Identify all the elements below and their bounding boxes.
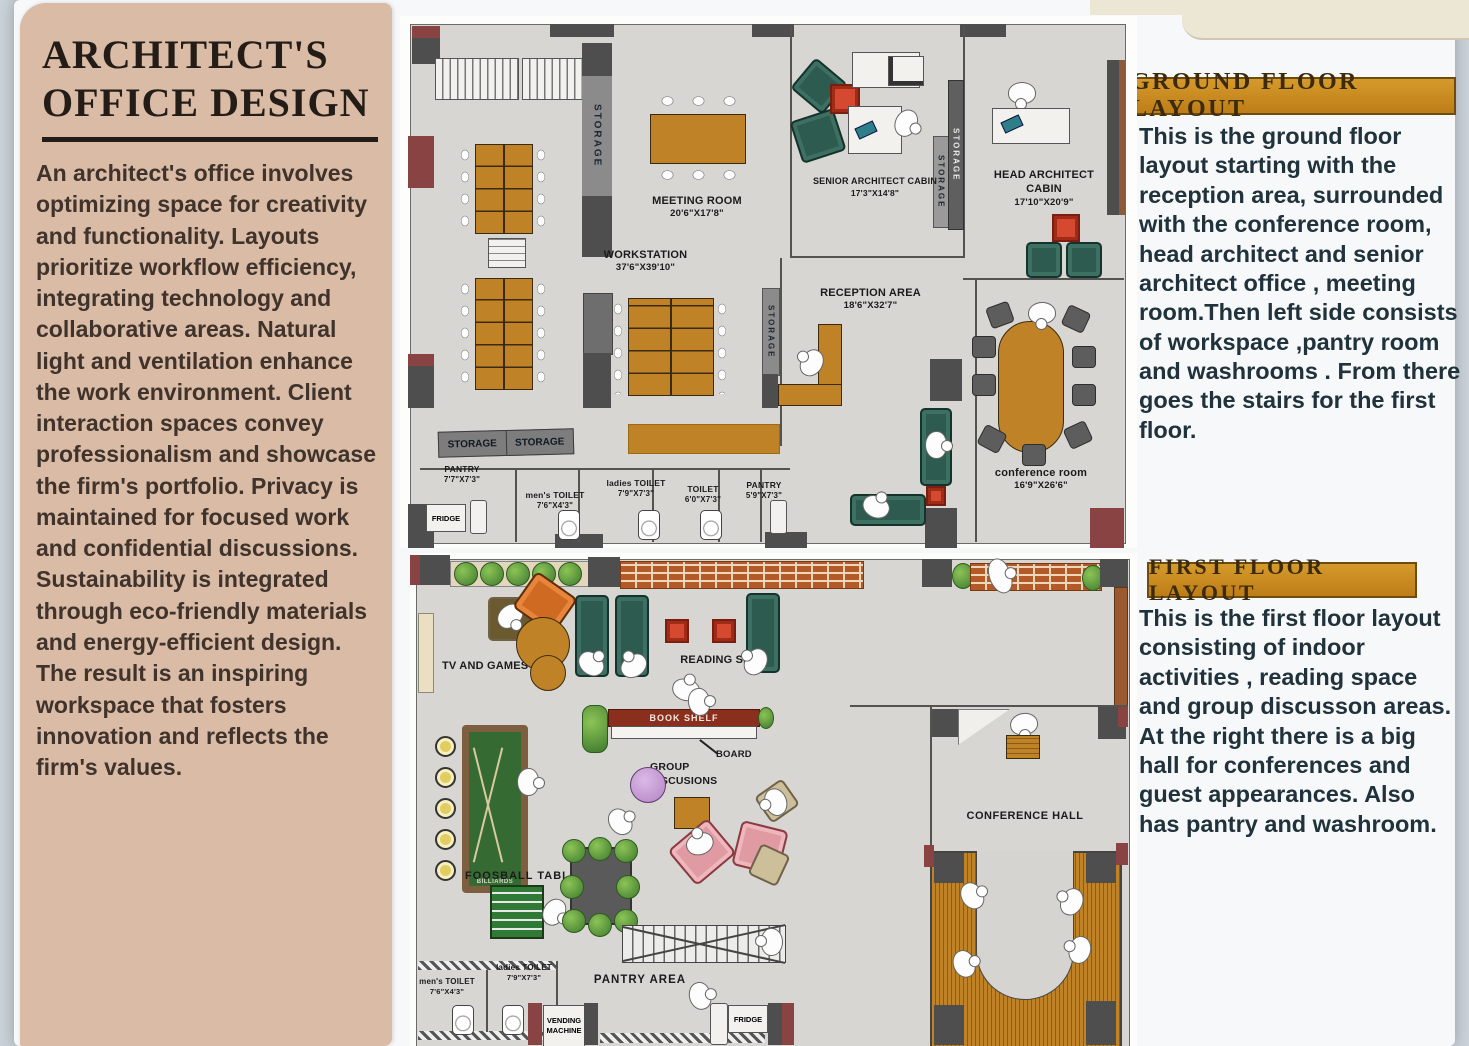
label-conference-room: conference room 16'9"X26'6" [982, 466, 1100, 493]
water-cooler-icon [470, 500, 487, 534]
first-floor-description: This is the first floor layout consistin… [1139, 604, 1461, 839]
stool-icon [435, 767, 456, 788]
bean-bag [630, 767, 666, 803]
page-title: ARCHITECT'S OFFICE DESIGN [42, 31, 378, 142]
plant-icon [560, 875, 584, 899]
label-toilet: TOILET 6'0"X7'3" [672, 484, 734, 505]
wall-segment [934, 853, 964, 883]
plant-icon [616, 875, 640, 899]
cabinet [583, 293, 613, 355]
label-pantry-right: PANTRY 5'9"X7'3" [734, 480, 794, 501]
wall-segment [1086, 1001, 1116, 1045]
side-table [665, 619, 689, 643]
label-board: BOARD [716, 749, 762, 761]
wall-line [850, 705, 1128, 707]
ground-floor-header-label: GROUND FLOOR LAYOUT [1131, 69, 1454, 123]
side-table [712, 619, 736, 643]
wall-stub [930, 359, 962, 401]
meeting-chairs-top [652, 92, 745, 112]
wall-line [515, 468, 517, 542]
label-head-cabin: HEAD ARCHITECT CABIN 17'10"X20'9" [988, 168, 1100, 209]
wall-segment [960, 24, 1006, 37]
wall-segment [1086, 853, 1116, 883]
table-corner [1182, 0, 1469, 40]
plant-icon [454, 562, 478, 586]
wall-segment [765, 532, 807, 548]
chair [1022, 444, 1046, 466]
tv-icon [418, 613, 434, 693]
label-reception: RECEPTION AREA 18'6"X32'7" [818, 286, 923, 313]
poster-photo: ARCHITECT'S OFFICE DESIGN An architect's… [0, 0, 1469, 1046]
plant-icon [562, 909, 586, 933]
stool-icon [435, 736, 456, 757]
conference-table [998, 321, 1064, 453]
title-line2: OFFICE DESIGN [42, 80, 370, 125]
wall-segment [1119, 60, 1125, 215]
label-senior-cabin: SENIOR ARCHITECT CABIN 17'3"X14'8" [805, 176, 945, 199]
wall-segment [1114, 587, 1128, 719]
chairs [457, 278, 474, 388]
foosball-table [490, 885, 544, 939]
storage-label: STORAGE [762, 288, 780, 376]
toilet-icon [452, 1005, 474, 1035]
wall-segment [1107, 60, 1119, 215]
wall-line [790, 256, 965, 258]
storage-cabinet [762, 374, 778, 408]
stool-icon [435, 829, 456, 850]
stool-icon [435, 798, 456, 819]
round-table [530, 655, 566, 691]
label-conference-hall: CONFERENCE HALL [958, 809, 1092, 823]
storage-label: STORAGE [948, 80, 964, 230]
wall-segment [1100, 559, 1128, 587]
wall-line [486, 970, 488, 1032]
title-line1: ARCHITECT'S [42, 32, 329, 77]
storage-label: STORAGE [582, 76, 612, 196]
workstation-desks [628, 298, 714, 396]
wall-segment [752, 24, 794, 37]
toilet-icon [638, 510, 660, 540]
chairs [533, 144, 550, 232]
book-shelf: BOOK SHELF [608, 709, 760, 727]
first-floor-header: FIRST FLOOR LAYOUT [1147, 562, 1417, 598]
chair [972, 336, 996, 358]
storage-label: STORAGE [439, 431, 507, 457]
reception-desk [778, 384, 842, 406]
workstation-desks [475, 278, 533, 390]
armchair [1026, 242, 1062, 278]
wall-segment [410, 555, 420, 585]
wall-segment [408, 354, 434, 366]
fridge: FRIDGE [728, 1005, 768, 1033]
wall-segment [1090, 508, 1124, 548]
wall-segment [922, 559, 952, 587]
fridge: FRIDGE [426, 504, 466, 532]
plant-icon [582, 705, 608, 753]
label-pantry-left: PANTRY 7'7"X7'3" [430, 464, 494, 485]
label-ladies-toilet: ladies TOILET 7'9"X7'3" [596, 478, 676, 499]
cabinet [583, 353, 611, 408]
shelf-ledge [611, 726, 757, 739]
brick-wall [620, 561, 864, 589]
workstation-desks [475, 144, 533, 234]
plant-icon [588, 837, 612, 861]
label-mens-toilet: men's TOILET 7'6"X4'3" [518, 490, 592, 511]
person-icon [1028, 302, 1057, 325]
podium-table [1006, 735, 1040, 759]
pantry-counter [628, 424, 780, 454]
wall-segment [408, 136, 434, 188]
toilet-icon [700, 510, 722, 540]
person-icon [761, 928, 783, 956]
toilet-icon [502, 1005, 524, 1035]
plant-icon [758, 707, 774, 729]
intro-paragraph-1: An architect's office involves optimizin… [36, 158, 382, 564]
wall-segment [528, 1003, 542, 1045]
printer-icon [888, 56, 924, 86]
wall-segment [1116, 843, 1128, 865]
wall-line [790, 26, 792, 258]
label-pantry-area: PANTRY AREA [590, 973, 690, 988]
chair [972, 374, 996, 396]
storage-boxes: STORAGE STORAGE [438, 428, 575, 458]
toilet-icon [558, 510, 580, 540]
wall-segment [924, 845, 934, 867]
storage-label: STORAGE [506, 429, 573, 455]
chairs [714, 298, 731, 394]
meeting-table [650, 114, 746, 164]
intro-paragraph-3: The result is an inspiring workspace tha… [36, 658, 382, 783]
wall-line [780, 258, 782, 446]
wall-segment [768, 1003, 782, 1045]
vending-machine: VENDING MACHINE [543, 1005, 585, 1046]
chairs [533, 278, 550, 388]
u-seating-floor [976, 851, 1074, 1000]
side-table [926, 486, 946, 506]
billiards-table: BILLIARDS [462, 725, 528, 893]
intro-paragraph-2: Sustainability is integrated through eco… [36, 564, 382, 658]
chair [1072, 346, 1096, 368]
person-icon [925, 431, 947, 459]
label-ff-mens-toilet: men's TOILET 7'6"X4'3" [412, 977, 482, 997]
chair [1072, 384, 1096, 406]
label-meeting-room: MEETING ROOM 20'6"X17'8" [638, 194, 756, 221]
plant-icon [562, 839, 586, 863]
ground-floor-plan: STORAGE MEETING ROOM 20'6"X17'8" WORKSTA… [400, 16, 1137, 548]
plant-icon [480, 562, 504, 586]
person-icon [1008, 82, 1036, 104]
wall-segment [584, 1003, 598, 1045]
plant-icon [558, 562, 582, 586]
stool-icon [435, 860, 456, 881]
water-cooler-icon [770, 500, 787, 534]
wall-segment [925, 508, 957, 548]
plotter-icon [435, 58, 519, 100]
wall-segment [782, 1003, 794, 1045]
first-floor-plan: TV AND GAMES READING SPACE BOOK SHELF BO… [410, 553, 1137, 1046]
hatched-wall [600, 1033, 765, 1043]
armchair [1066, 242, 1102, 278]
plant-icon [506, 562, 530, 586]
wall-segment [932, 709, 958, 737]
label-workstation: WORKSTATION 37'6"X39'10" [578, 248, 713, 275]
intro-text: An architect's office involves optimizin… [36, 158, 382, 783]
side-table [1052, 214, 1080, 242]
wall-line [975, 280, 977, 542]
wall-segment [1118, 707, 1128, 727]
plant-icon [614, 839, 638, 863]
wall-segment [412, 26, 440, 38]
copier-icon [488, 238, 526, 268]
wall-segment [588, 557, 620, 587]
plant-icon [588, 913, 612, 937]
chairs [457, 144, 474, 232]
person-icon [517, 768, 539, 796]
wall-segment [934, 1005, 964, 1045]
wall-segment [550, 24, 614, 37]
first-floor-header-label: FIRST FLOOR LAYOUT [1149, 554, 1415, 606]
meeting-chairs-bottom [652, 166, 745, 186]
intro-panel: ARCHITECT'S OFFICE DESIGN An architect's… [20, 3, 392, 1046]
label-ff-ladies-toilet: ladies TOILET 7'9"X7'3" [490, 963, 558, 983]
ground-floor-description: This is the ground floor layout starting… [1139, 122, 1461, 445]
wall-line [963, 278, 1124, 280]
water-cooler-icon [710, 1003, 728, 1045]
ground-floor-header: GROUND FLOOR LAYOUT [1129, 77, 1456, 115]
